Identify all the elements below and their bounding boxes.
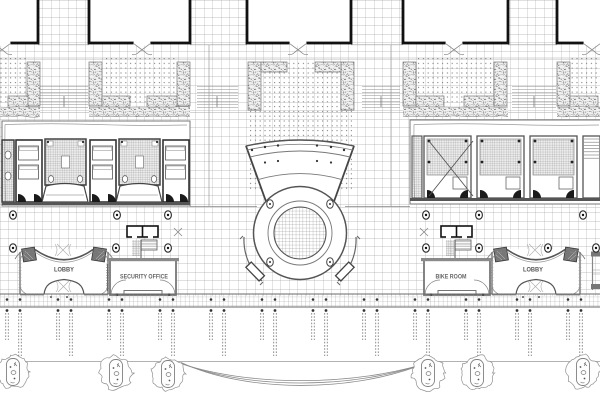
svg-text:SECURITY OFFICE: SECURITY OFFICE [120,274,168,281]
svg-text:LOBBY: LOBBY [54,267,75,274]
svg-text:BIKE ROOM: BIKE ROOM [436,274,467,281]
svg-text:LOBBY: LOBBY [523,267,544,274]
